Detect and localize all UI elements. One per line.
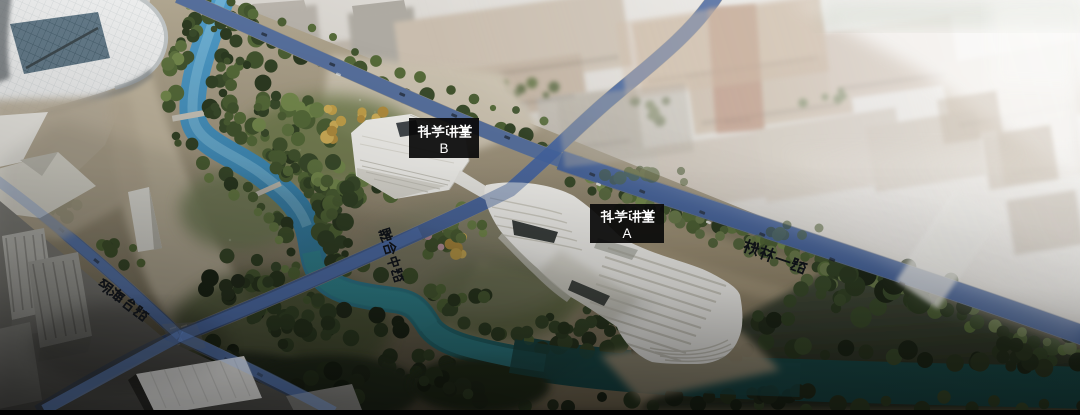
svg-text:A: A — [622, 226, 631, 241]
svg-text:B: B — [439, 141, 448, 156]
